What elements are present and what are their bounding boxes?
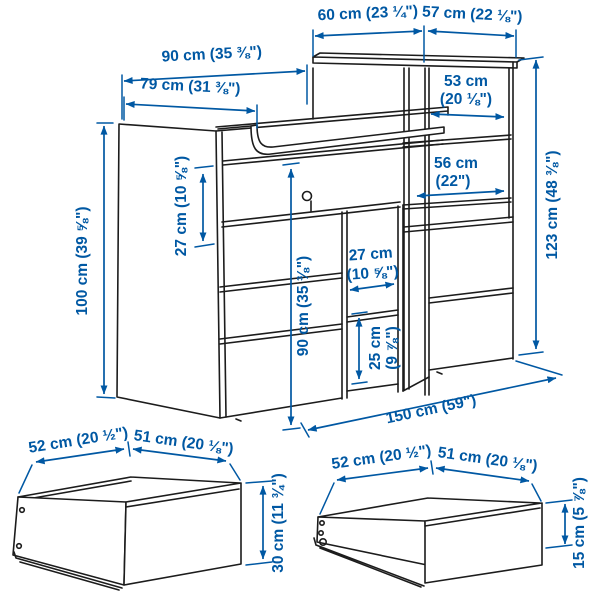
tall-shelf-unit	[313, 53, 524, 395]
dim-niche-width-label-1: 27 cm	[348, 244, 393, 264]
dim-table-top-width-label: 79 cm (31 ⅜")	[140, 75, 241, 97]
large-drawer-height-label: 30 cm (11 ¾")	[270, 473, 287, 573]
dim-top-width-label: 57 cm (22 ⅛")	[422, 3, 523, 25]
small-drawer-height-label: 15 cm (5 ⅞")	[571, 477, 588, 569]
small-drawer-depth-label: 52 cm (20 ½")	[330, 442, 432, 473]
dim-top-depth-label: 60 cm (23 ¼")	[317, 3, 418, 24]
dim-total-width-label: 150 cm (59")	[384, 392, 477, 428]
dimension-diagram-page: 60 cm (23 ¼") 57 cm (22 ⅛") 90 cm (35 ⅜"…	[0, 0, 600, 600]
dim-lower-shelf-label-2: (22")	[436, 173, 471, 190]
large-drawer-drawing	[13, 477, 241, 590]
dim-upper-shelf-label-1: 53 cm	[444, 73, 488, 90]
small-drawer-drawing	[314, 498, 542, 587]
dim-front-height-label: 90 cm (35 ⅜")	[295, 256, 312, 356]
large-drawer-depth-label: 52 cm (20 ½")	[27, 424, 129, 456]
dim-upper-shelf-label-2: (20 ⅛")	[440, 91, 492, 108]
dim-lower-shelf-label-1: 56 cm	[434, 155, 478, 172]
dim-niche-width-label-2: (10 ⅝")	[346, 263, 399, 284]
dim-chest-top-width-label: 90 cm (35 ⅜")	[161, 43, 262, 65]
dim-total-height-label: 123 cm (48 ⅜")	[544, 150, 561, 259]
dim-niche-height-label-2: (9 ⅞")	[384, 326, 401, 370]
dim-top-compartment-height-label: 27 cm (10 ⅝")	[173, 156, 190, 256]
dim-chest-height-label: 100 cm (39 ⅝")	[74, 206, 91, 315]
large-drawer-width-label: 51 cm (20 ⅛")	[133, 427, 235, 458]
dim-niche-height-label-1: 25 cm	[367, 326, 384, 370]
dimension-diagram: 60 cm (23 ¼") 57 cm (22 ⅛") 90 cm (35 ⅜"…	[0, 0, 600, 600]
